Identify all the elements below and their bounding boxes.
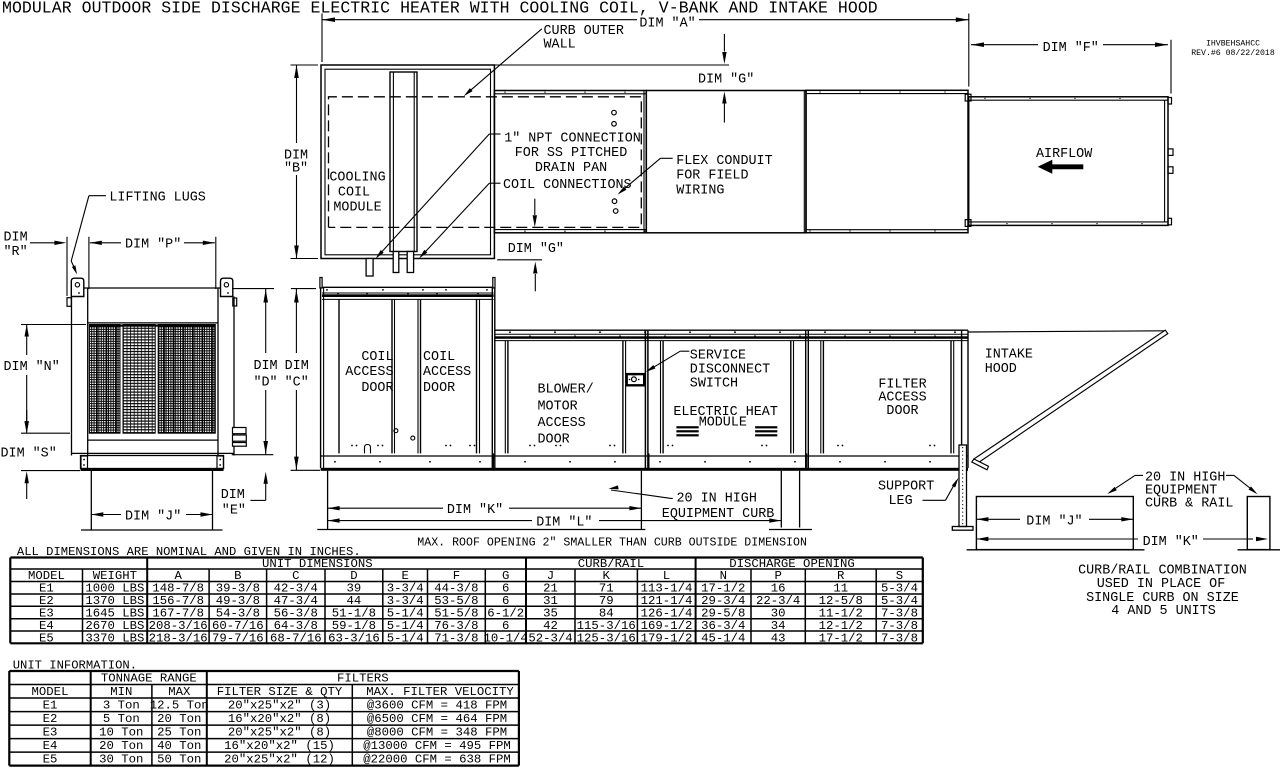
svg-text:71-3/8: 71-3/8	[434, 631, 478, 645]
svg-text:DIM "N": DIM "N"	[4, 360, 60, 375]
svg-text:FOR FIELD: FOR FIELD	[676, 169, 748, 184]
svg-text:DOOR: DOOR	[538, 433, 570, 448]
svg-text:DIM "K": DIM "K"	[447, 503, 503, 518]
svg-text:63-3/16: 63-3/16	[328, 631, 380, 645]
svg-text:DISCHARGE OPENING: DISCHARGE OPENING	[729, 557, 854, 571]
svg-text:COIL: COIL	[361, 350, 393, 365]
svg-text:E5: E5	[43, 753, 58, 767]
svg-text:DOOR: DOOR	[361, 381, 393, 396]
svg-text:125-3/16: 125-3/16	[577, 631, 636, 645]
svg-text:DIM "G": DIM "G"	[508, 242, 564, 257]
svg-text:MODULE: MODULE	[699, 415, 747, 430]
svg-text:17-1/2: 17-1/2	[819, 631, 863, 645]
svg-text:50 Ton: 50 Ton	[157, 753, 201, 767]
svg-text:HOOD: HOOD	[985, 362, 1017, 377]
svg-text:MIN: MIN	[110, 685, 132, 699]
svg-text:20"x25"x2" (3): 20"x25"x2" (3)	[228, 699, 331, 713]
svg-text:"B": "B"	[284, 161, 308, 176]
svg-text:43: 43	[771, 631, 786, 645]
svg-text:45-1/4: 45-1/4	[701, 631, 745, 645]
svg-text:SERVICE: SERVICE	[690, 348, 746, 363]
svg-text:WALL: WALL	[544, 38, 576, 53]
svg-text:@8000 CFM = 348 FPM: @8000 CFM = 348 FPM	[367, 726, 507, 740]
svg-text:68-7/16: 68-7/16	[270, 631, 322, 645]
svg-text:USED IN PLACE OF: USED IN PLACE OF	[1097, 577, 1226, 592]
svg-text:LIFTING LUGS: LIFTING LUGS	[109, 190, 205, 205]
svg-text:EQUIPMENT CURB: EQUIPMENT CURB	[662, 507, 775, 522]
svg-text:INTAKE: INTAKE	[985, 348, 1033, 363]
svg-text:MODULE: MODULE	[333, 201, 381, 216]
svg-text:218-3/16: 218-3/16	[149, 631, 208, 645]
svg-text:12.5 Ton: 12.5 Ton	[150, 699, 209, 713]
svg-text:"C": "C"	[285, 376, 309, 391]
svg-text:DIM "L": DIM "L"	[536, 516, 592, 531]
svg-text:@3600 CFM = 418 FPM: @3600 CFM = 418 FPM	[367, 699, 507, 713]
svg-text:CURB & RAIL: CURB & RAIL	[1145, 496, 1233, 511]
svg-text:REV.#6 08/22/2018: REV.#6 08/22/2018	[1191, 48, 1275, 58]
svg-text:TONNAGE RANGE: TONNAGE RANGE	[101, 672, 197, 686]
svg-text:4 AND 5 UNITS: 4 AND 5 UNITS	[1111, 604, 1215, 619]
svg-text:DIM "S": DIM "S"	[1, 447, 57, 462]
svg-text:16"x20"x2" (8): 16"x20"x2" (8)	[228, 712, 331, 726]
svg-text:E2: E2	[43, 712, 58, 726]
svg-text:52-3/4: 52-3/4	[528, 631, 572, 645]
svg-text:5-1/4: 5-1/4	[387, 631, 424, 645]
svg-text:@13000 CFM = 495 FPM: @13000 CFM = 495 FPM	[363, 739, 511, 753]
svg-text:BLOWER/: BLOWER/	[538, 383, 594, 398]
svg-text:7-3/8: 7-3/8	[881, 631, 918, 645]
svg-text:DIM "G": DIM "G"	[698, 73, 754, 88]
svg-text:3370 LBS: 3370 LBS	[85, 631, 144, 645]
svg-text:E4: E4	[43, 739, 58, 753]
svg-text:DIM "F": DIM "F"	[1043, 41, 1099, 56]
svg-text:DIM: DIM	[4, 231, 28, 246]
svg-text:COIL: COIL	[423, 350, 455, 365]
svg-text:COOLING: COOLING	[329, 171, 385, 186]
svg-text:"D": "D"	[253, 376, 277, 391]
svg-text:MODULAR OUTDOOR SIDE DISCHARGE: MODULAR OUTDOOR SIDE DISCHARGE ELECTRIC …	[2, 0, 878, 18]
svg-text:ACCESS: ACCESS	[423, 365, 471, 380]
svg-text:DIM "P": DIM "P"	[125, 237, 181, 252]
svg-text:COIL: COIL	[338, 186, 370, 201]
svg-text:20"x25"x2" (8): 20"x25"x2" (8)	[228, 726, 331, 740]
svg-text:AIRFLOW: AIRFLOW	[1036, 147, 1093, 162]
svg-text:FILTERS: FILTERS	[337, 672, 389, 686]
svg-text:DISCONNECT: DISCONNECT	[690, 362, 770, 377]
svg-text:ACCESS: ACCESS	[538, 416, 586, 431]
svg-text:FOR SS PITCHED: FOR SS PITCHED	[515, 146, 628, 161]
svg-text:DOOR: DOOR	[886, 404, 918, 419]
svg-text:DIM: DIM	[253, 359, 277, 374]
svg-text:179-1/2: 179-1/2	[641, 631, 693, 645]
svg-text:20"x25"x2" (12): 20"x25"x2" (12)	[224, 753, 335, 767]
svg-text:COIL CONNECTIONS: COIL CONNECTIONS	[503, 178, 632, 193]
svg-text:25 Ton: 25 Ton	[157, 726, 201, 740]
svg-text:DIM "K": DIM "K"	[1143, 535, 1199, 550]
svg-text:"E": "E"	[222, 503, 246, 518]
svg-text:CURB/RAIL: CURB/RAIL	[578, 557, 644, 571]
svg-text:20 Ton: 20 Ton	[99, 739, 143, 753]
svg-text:LEG: LEG	[889, 494, 913, 509]
svg-text:"R": "R"	[4, 245, 28, 260]
svg-text:DIM "J": DIM "J"	[1026, 514, 1082, 529]
svg-text:MAX. FILTER VELOCITY: MAX. FILTER VELOCITY	[366, 685, 514, 699]
svg-text:79-7/16: 79-7/16	[212, 631, 264, 645]
svg-text:MOTOR: MOTOR	[538, 399, 578, 414]
svg-text:E3: E3	[43, 726, 58, 740]
svg-text:@22000 CFM = 638 FPM: @22000 CFM = 638 FPM	[363, 753, 511, 767]
svg-text:40 Ton: 40 Ton	[157, 739, 201, 753]
svg-text:30 Ton: 30 Ton	[99, 753, 143, 767]
svg-text:DIM: DIM	[221, 488, 245, 503]
svg-text:3 Ton: 3 Ton	[103, 699, 140, 713]
svg-text:16"x20"x2" (15): 16"x20"x2" (15)	[224, 739, 335, 753]
svg-text:IHVBEHSAHCC: IHVBEHSAHCC	[1206, 40, 1260, 49]
svg-text:MODEL: MODEL	[32, 685, 69, 699]
svg-text:@6500 CFM = 464 FPM: @6500 CFM = 464 FPM	[367, 712, 507, 726]
svg-text:SWITCH: SWITCH	[690, 377, 738, 392]
svg-text:5 Ton: 5 Ton	[103, 712, 140, 726]
svg-text:FLEX CONDUIT: FLEX CONDUIT	[676, 154, 772, 169]
svg-text:10 Ton: 10 Ton	[99, 726, 143, 740]
svg-text:DOOR: DOOR	[423, 381, 455, 396]
svg-text:DIM "A": DIM "A"	[639, 16, 695, 31]
svg-text:DRAIN PAN: DRAIN PAN	[535, 161, 607, 176]
svg-text:WIRING: WIRING	[676, 183, 724, 198]
svg-text:20 Ton: 20 Ton	[157, 712, 201, 726]
svg-text:1" NPT CONNECTION: 1" NPT CONNECTION	[504, 132, 641, 147]
svg-text:MAX. ROOF OPENING 2" SMALLER T: MAX. ROOF OPENING 2" SMALLER THAN CURB O…	[417, 536, 807, 549]
svg-text:SUPPORT: SUPPORT	[878, 480, 934, 495]
svg-text:DIM: DIM	[285, 359, 309, 374]
svg-text:ACCESS: ACCESS	[345, 365, 393, 380]
svg-text:E1: E1	[43, 699, 58, 713]
svg-text:20 IN HIGH: 20 IN HIGH	[677, 492, 757, 507]
svg-text:DIM "J": DIM "J"	[125, 510, 181, 525]
svg-text:MAX: MAX	[168, 685, 191, 699]
svg-text:10-1/4: 10-1/4	[484, 631, 528, 645]
svg-text:E5: E5	[39, 631, 54, 645]
svg-text:FILTER SIZE & QTY: FILTER SIZE & QTY	[217, 685, 343, 699]
